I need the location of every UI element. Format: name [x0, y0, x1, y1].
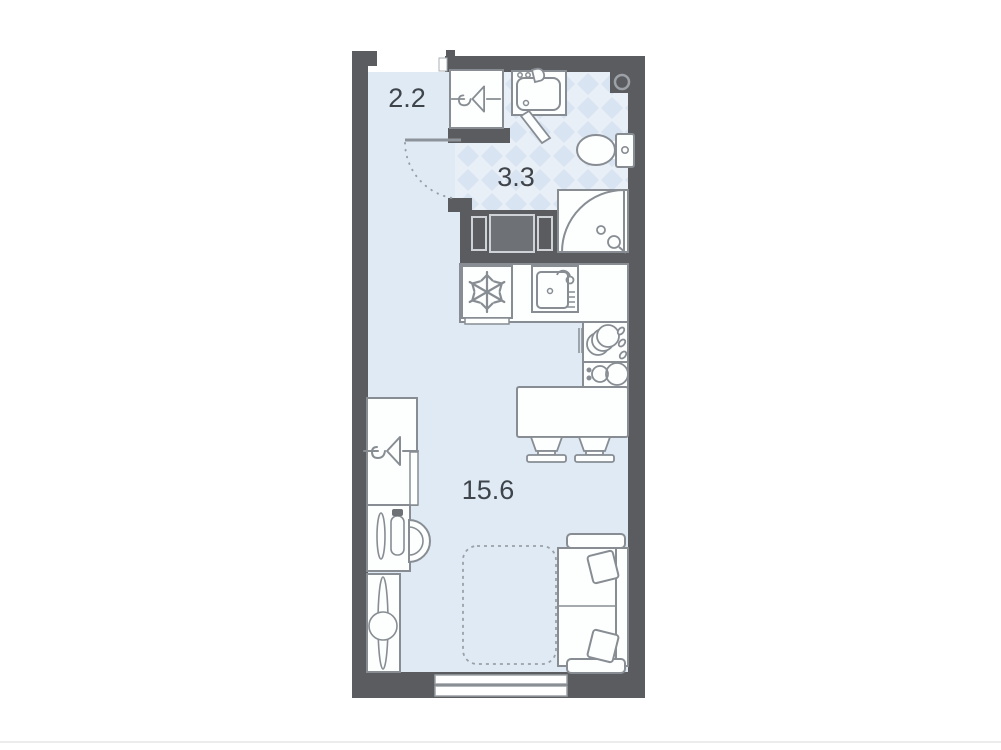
sofa-pillow-icon	[587, 629, 619, 662]
tv-stand	[367, 574, 400, 672]
living-area-label: 15.6	[462, 475, 515, 505]
dining-table	[517, 387, 628, 437]
shower-cabin	[558, 190, 628, 253]
hallway-area-label: 2.2	[388, 83, 426, 113]
floorplan-page: 2.2 3.3 15.6	[0, 0, 1001, 750]
sofa-armrest-top	[567, 534, 625, 548]
desk-item-icon	[377, 513, 385, 559]
wall-left	[352, 56, 368, 698]
sofa-backrest	[616, 548, 628, 666]
entry-wardrobe	[450, 70, 503, 128]
tv-stand-knob-icon	[369, 612, 397, 640]
desk	[367, 505, 410, 571]
desk-lamp-icon	[392, 509, 403, 516]
wall-strip-bath-kitchen	[460, 252, 628, 264]
kitchen-sink	[532, 266, 578, 312]
toilet	[577, 134, 634, 167]
desk-item-icon	[391, 516, 404, 555]
bathroom-sink	[512, 69, 566, 115]
fridge	[462, 266, 512, 324]
page-edge-line	[0, 741, 1001, 743]
sofa-pillow-icon	[587, 550, 619, 583]
entrance-opening	[439, 58, 447, 71]
sink-faucet-icon	[532, 69, 544, 82]
sofa-bed	[558, 534, 628, 673]
window	[435, 675, 567, 696]
wall-stub-bath-door	[448, 198, 472, 212]
living-wardrobe	[364, 398, 418, 505]
wardrobe-door	[410, 452, 418, 505]
sofa-armrest-bottom	[567, 659, 625, 673]
floorplan-drawing: 2.2 3.3 15.6	[0, 0, 1001, 750]
bathroom-area-label: 3.3	[497, 162, 535, 192]
